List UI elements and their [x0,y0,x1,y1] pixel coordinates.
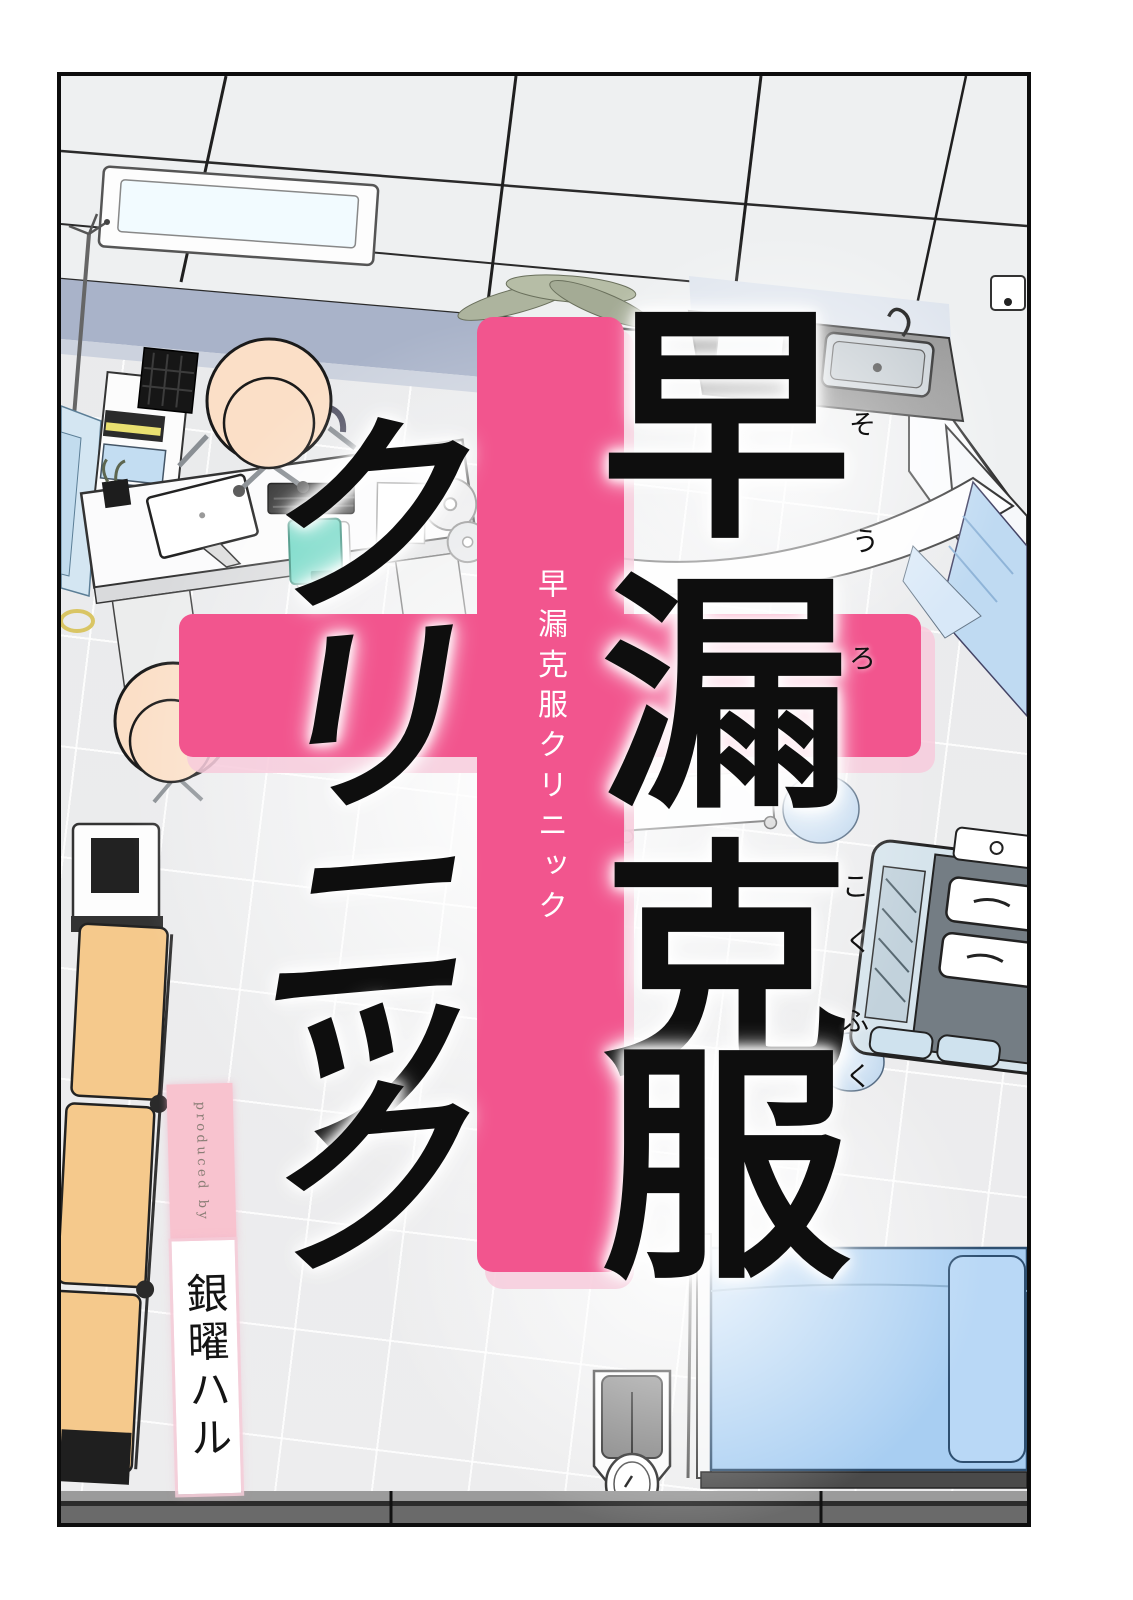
waiting-bench [61,923,177,1486]
furigana-ku2: く [845,1064,872,1091]
produced-by-label: produced by [166,1083,236,1242]
furigana-ro: ろ [849,646,876,673]
floor-machine [71,824,163,932]
author-name-label: 銀曜ハル [172,1240,242,1495]
baseboard [61,1491,1027,1523]
title-char-ku2: ク [241,1064,511,1293]
title-char-fuku: 服 [595,1041,857,1291]
furigana-ko: こ [842,874,869,901]
manga-cover: 早漏克服クリニック ク リ ニ ッ ク 早 漏 克 服 そ う ろ こ く ふ … [0,0,1133,1600]
pillow [949,1256,1025,1462]
furigana-ku1: く [845,929,872,956]
furigana-so: そ [849,412,876,439]
instrument-cart [849,817,1027,1075]
furigana-u: う [852,529,879,556]
manga-page-frame: 早漏克服クリニック ク リ ニ ッ ク 早 漏 克 服 そ う ろ こ く ふ … [57,72,1031,1527]
furigana-fu: ふ [842,1009,869,1036]
title-char-sou: 早 [595,301,857,551]
subtitle-vertical: 早漏克服クリニック [517,568,581,1008]
title-char-rou: 漏 [595,571,857,821]
